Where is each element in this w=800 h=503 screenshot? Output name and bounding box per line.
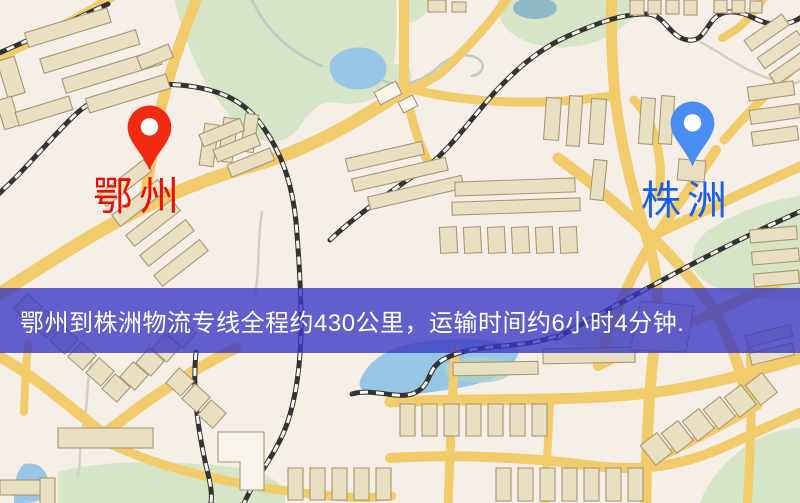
destination-label: 株洲 — [587, 181, 787, 221]
route-summary-text: 鄂州到株洲物流专线全程约430公里，运输时间约6小时4分钟. — [20, 303, 684, 338]
origin-pin-icon — [126, 104, 173, 172]
info-banner: 鄂州到株洲物流专线全程约430公里，运输时间约6小时4分钟. — [0, 288, 800, 353]
map-canvas — [0, 0, 800, 503]
lake — [330, 47, 387, 89]
map-screenshot: 鄂州到株洲物流专线全程约430公里，运输时间约6小时4分钟. 鄂州 株洲 — [0, 0, 800, 503]
origin-label: 鄂州 — [39, 177, 239, 217]
destination-pin-icon — [668, 100, 717, 168]
